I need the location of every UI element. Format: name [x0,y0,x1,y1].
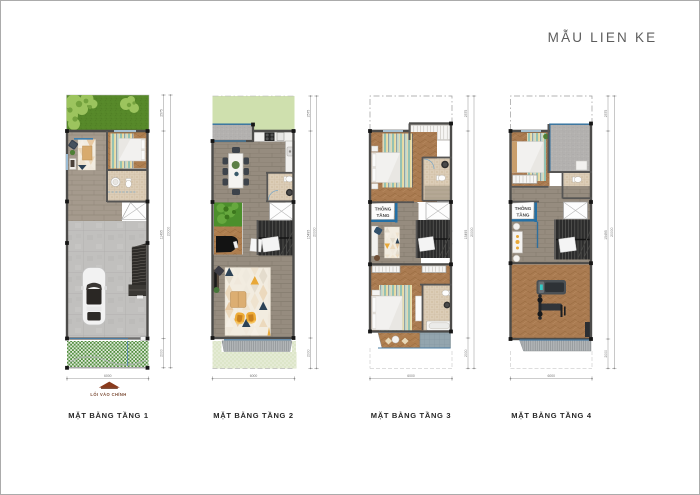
svg-text:6000: 6000 [104,374,112,378]
svg-text:2000: 2000 [464,349,468,357]
svg-text:2000: 2000 [159,349,163,357]
svg-text:15495: 15495 [306,230,310,240]
svg-text:20000: 20000 [470,227,474,237]
svg-text:2575: 2575 [159,109,163,117]
svg-text:20000: 20000 [166,227,170,237]
svg-text:LỐI VÀO CHÍNH: LỐI VÀO CHÍNH [90,392,126,397]
svg-text:15495: 15495 [464,230,468,240]
svg-text:6000: 6000 [250,374,258,378]
svg-text:15495: 15495 [604,230,608,240]
svg-text:MẪU LIEN KE: MẪU LIEN KE [548,30,658,45]
svg-text:2575: 2575 [604,110,608,118]
svg-text:2000: 2000 [306,349,310,357]
svg-text:MẶT BẰNG TẦNG 2: MẶT BẰNG TẦNG 2 [213,410,294,420]
svg-text:THÔNG: THÔNG [515,204,532,211]
svg-text:TẦNG: TẦNG [516,211,529,217]
svg-text:20000: 20000 [312,227,316,237]
svg-text:2000: 2000 [604,350,608,358]
svg-text:MẶT BẰNG TẦNG 3: MẶT BẰNG TẦNG 3 [371,410,452,420]
svg-text:TẦNG: TẦNG [376,212,389,218]
svg-text:11495: 11495 [159,230,163,239]
svg-text:2575: 2575 [306,110,310,118]
svg-text:6000: 6000 [547,374,555,378]
svg-text:MẶT BẰNG TẦNG 1: MẶT BẰNG TẦNG 1 [68,410,149,420]
svg-text:2575: 2575 [464,110,468,118]
svg-text:6000: 6000 [407,374,415,378]
svg-text:MẶT BẰNG TẦNG 4: MẶT BẰNG TẦNG 4 [511,410,592,420]
svg-text:20000: 20000 [610,227,614,237]
svg-text:THÔNG: THÔNG [375,204,392,211]
